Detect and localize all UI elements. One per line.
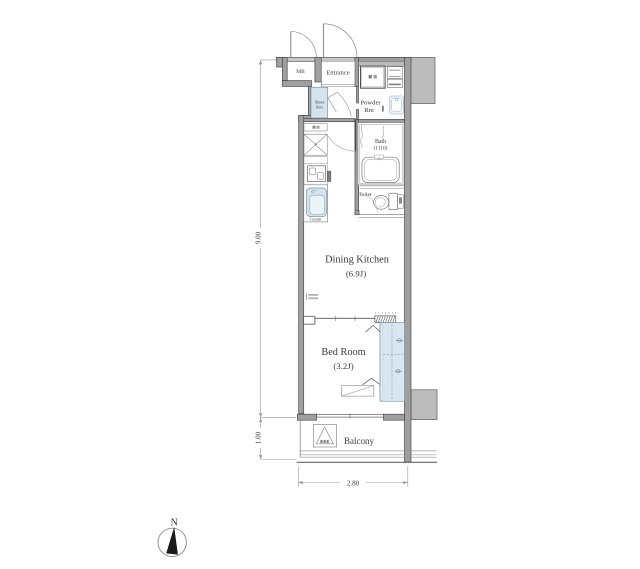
svg-text:Counter: Counter (310, 217, 322, 221)
svg-text:(3.2J): (3.2J) (333, 361, 353, 371)
svg-text:Box: Box (316, 105, 323, 110)
svg-text:Dining Kitchen: Dining Kitchen (325, 255, 389, 266)
svg-text:(6.9J): (6.9J) (346, 269, 366, 279)
svg-text:(1116): (1116) (374, 145, 388, 152)
svg-text:Toilet: Toilet (359, 192, 372, 198)
svg-text:MB: MB (296, 69, 305, 75)
svg-text:2.80: 2.80 (347, 480, 360, 488)
svg-text:9.00: 9.00 (255, 231, 263, 244)
svg-text:Balcony: Balcony (344, 436, 374, 446)
svg-text:Entrance: Entrance (326, 70, 350, 77)
svg-text:1.00: 1.00 (255, 431, 263, 444)
svg-text:Rm: Rm (364, 107, 374, 114)
svg-text:Bath: Bath (375, 139, 386, 145)
svg-text:Bed Room: Bed Room (321, 347, 365, 358)
svg-text:Powder: Powder (360, 100, 381, 107)
svg-text:N: N (171, 517, 178, 528)
